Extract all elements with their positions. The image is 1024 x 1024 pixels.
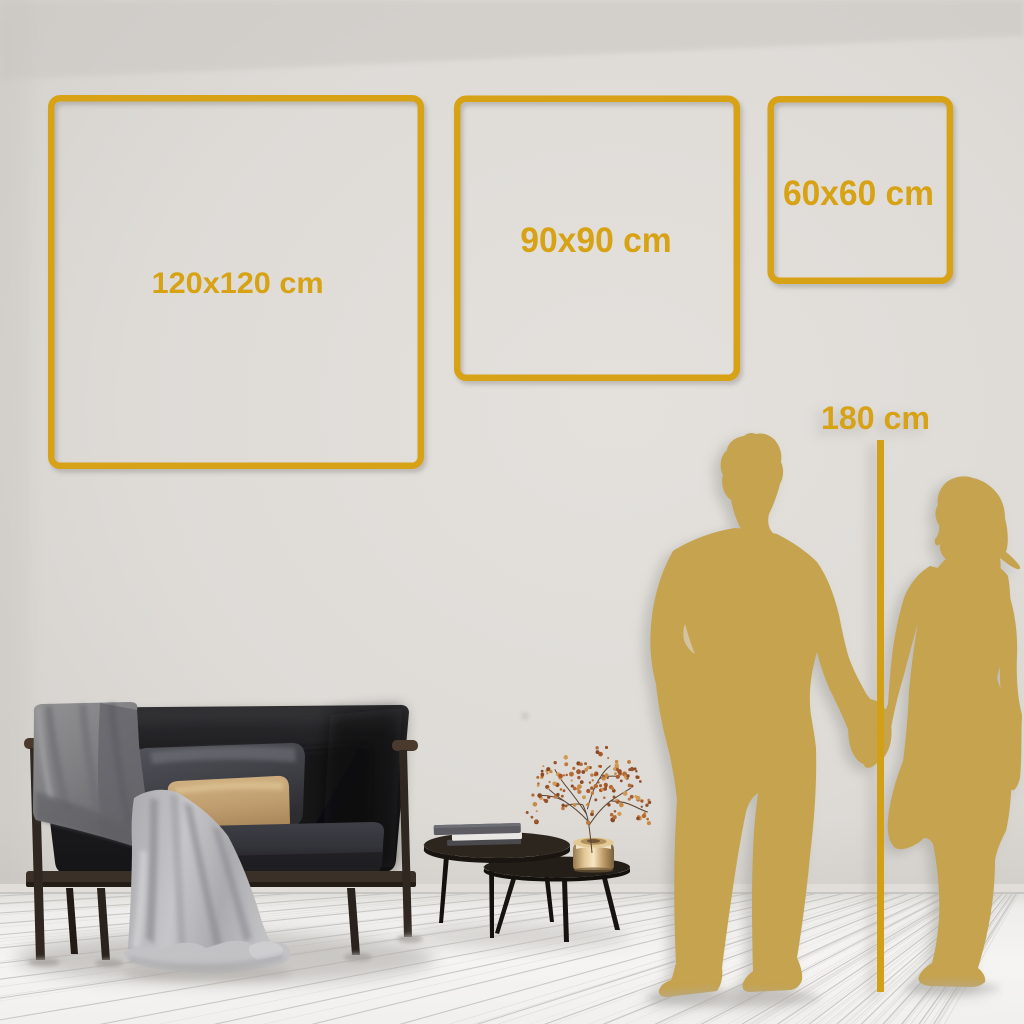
svg-text:120x120 cm: 120x120 cm (152, 267, 324, 300)
svg-text:60x60 cm: 60x60 cm (783, 173, 934, 213)
svg-text:180 cm: 180 cm (821, 400, 930, 436)
svg-text:90x90 cm: 90x90 cm (520, 221, 671, 260)
